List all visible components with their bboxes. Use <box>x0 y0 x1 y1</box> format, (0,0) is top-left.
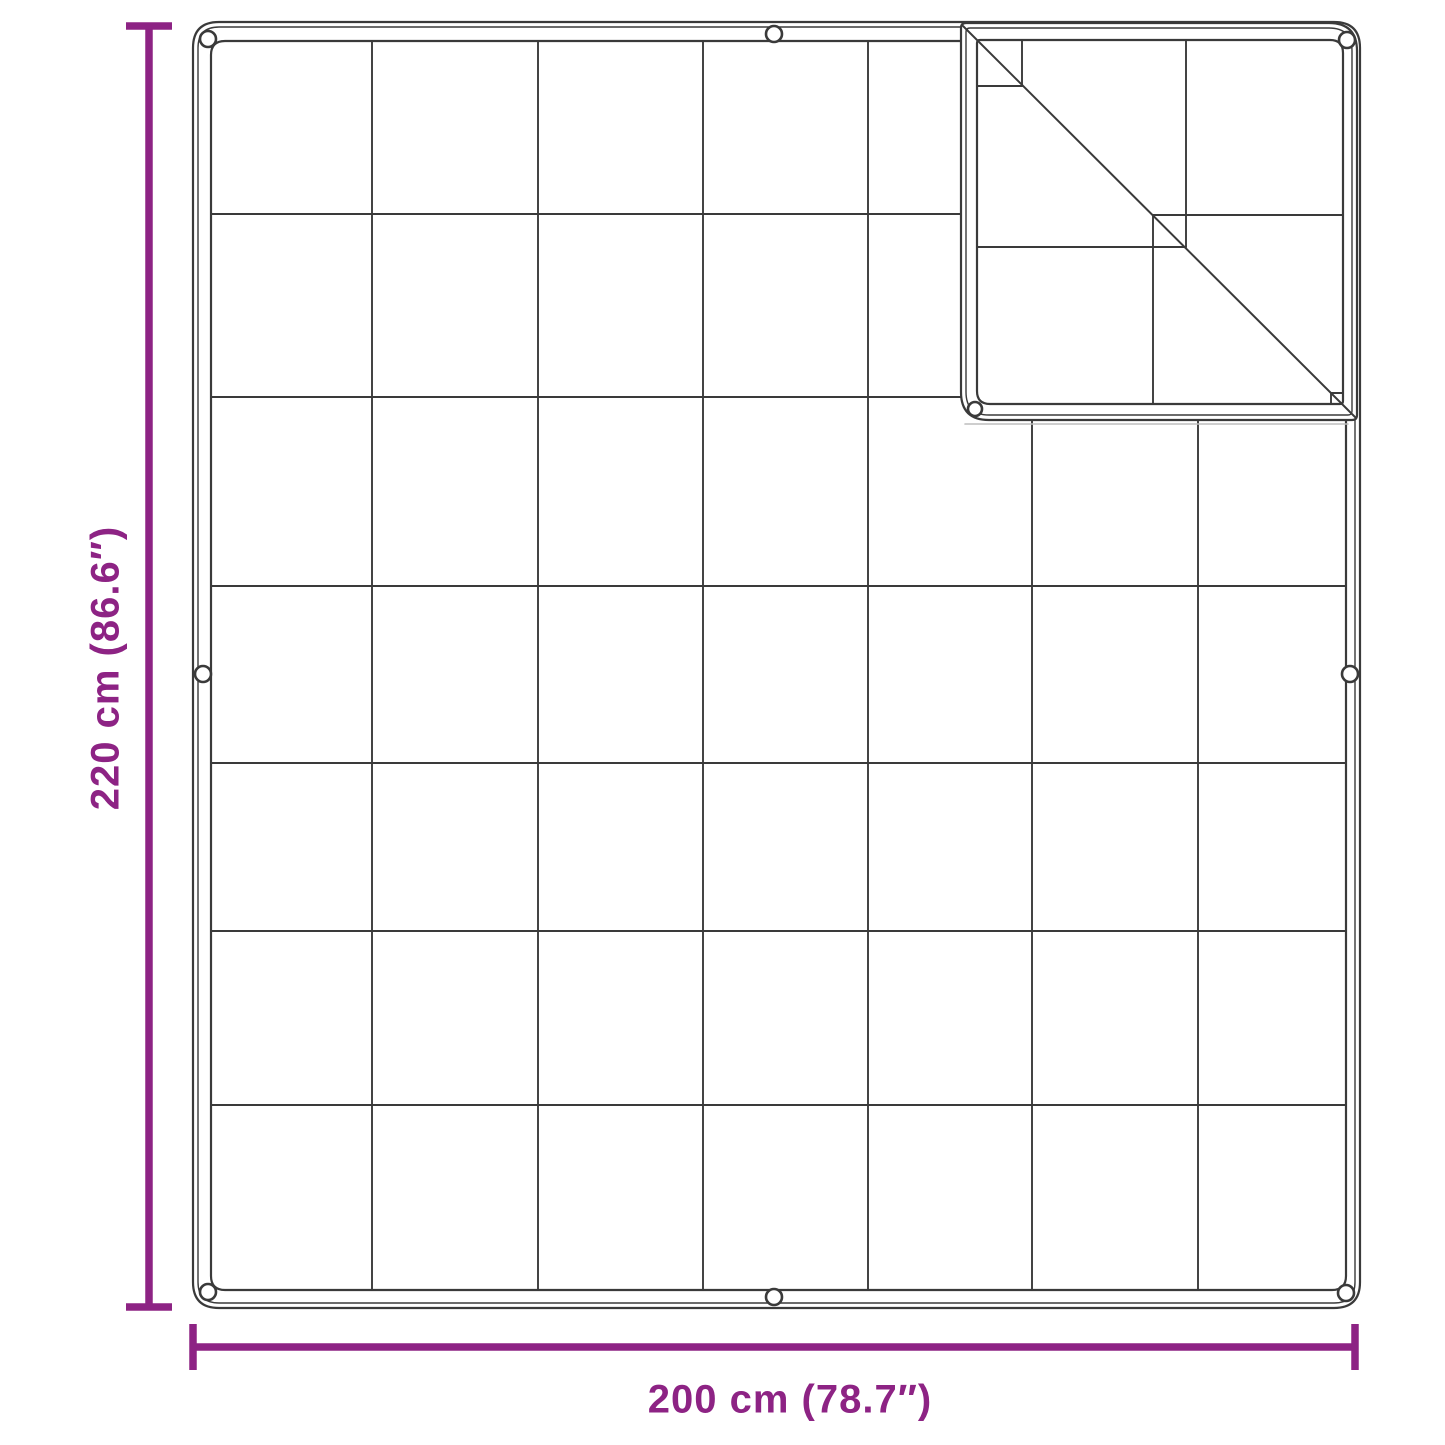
grommet-icon <box>968 402 982 416</box>
width-dimension-line <box>193 1324 1355 1370</box>
grommet-icon <box>200 31 216 47</box>
dimension-diagram: 220 cm (86.6″) 200 cm (78.7″) <box>0 0 1445 1445</box>
grommet-icon <box>1339 32 1355 48</box>
grommet-icon <box>195 666 211 682</box>
folded-corner-flap <box>961 23 1357 424</box>
width-dimension-label: 200 cm (78.7″) <box>648 1378 932 1423</box>
grommet-icon <box>1342 666 1358 682</box>
height-dimension-line <box>126 26 172 1307</box>
height-dimension-label: 220 cm (86.6″) <box>84 526 129 810</box>
grommet-icon <box>766 1289 782 1305</box>
blanket-drawing <box>0 0 1445 1445</box>
grommet-icon <box>200 1284 216 1300</box>
grommet-icon <box>766 26 782 42</box>
grommet-icon <box>1338 1285 1354 1301</box>
